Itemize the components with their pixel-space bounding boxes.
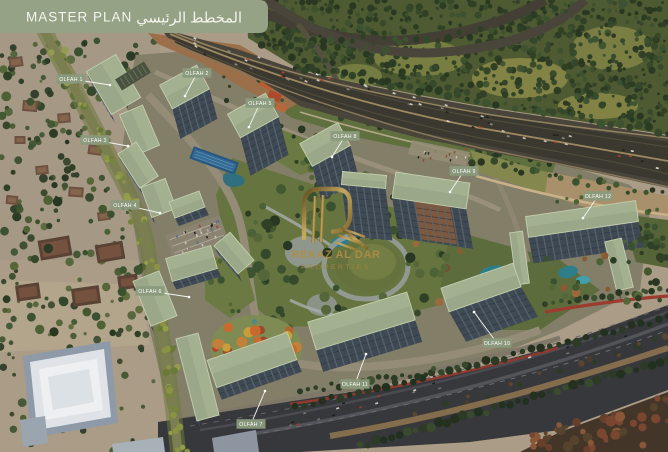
svg-text:OLFAH 10: OLFAH 10 xyxy=(484,341,511,347)
svg-text:OLFAH 8: OLFAH 8 xyxy=(333,134,356,140)
svg-text:OLFAH 5: OLFAH 5 xyxy=(248,101,271,107)
svg-text:OLFAH 1: OLFAH 1 xyxy=(59,77,82,83)
svg-text:PROPERTIES: PROPERTIES xyxy=(301,264,371,271)
svg-text:المخطط الرئيسي: المخطط الرئيسي xyxy=(136,11,242,27)
svg-text:OLFAH 6: OLFAH 6 xyxy=(138,289,161,295)
svg-text:OLFAH 7: OLFAH 7 xyxy=(239,422,262,428)
svg-text:OLFAH 11: OLFAH 11 xyxy=(342,382,368,388)
svg-text:MASTER PLAN: MASTER PLAN xyxy=(26,10,132,25)
svg-text:OLFAH 4: OLFAH 4 xyxy=(113,203,136,209)
svg-text:OLFAH 9: OLFAH 9 xyxy=(452,169,475,175)
svg-text:OLFAH 3: OLFAH 3 xyxy=(83,138,106,144)
svg-text:OLFAH 12: OLFAH 12 xyxy=(585,194,612,200)
svg-text:REKAZ AL DAR: REKAZ AL DAR xyxy=(291,249,380,261)
svg-text:OLFAH 2: OLFAH 2 xyxy=(185,71,208,77)
